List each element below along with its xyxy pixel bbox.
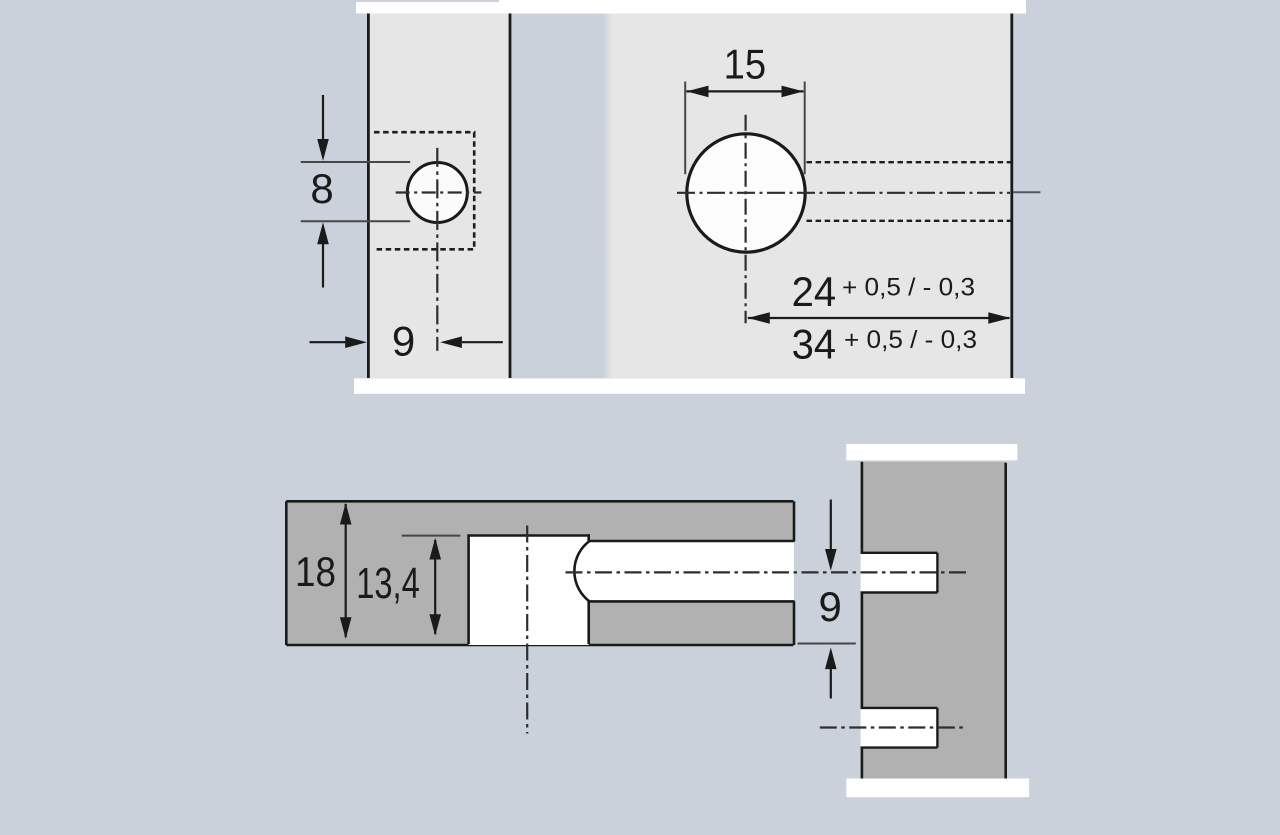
svg-text:+ 0,5 / - 0,3: + 0,5 / - 0,3 <box>844 326 977 354</box>
svg-text:18: 18 <box>295 548 336 595</box>
svg-text:24: 24 <box>792 268 837 315</box>
svg-text:13,4: 13,4 <box>356 559 420 608</box>
svg-text:+ 0,5 / - 0,3: + 0,5 / - 0,3 <box>842 274 975 302</box>
svg-text:8: 8 <box>310 165 333 212</box>
svg-text:15: 15 <box>724 40 767 87</box>
svg-text:9: 9 <box>392 317 415 364</box>
svg-text:9: 9 <box>819 583 842 630</box>
svg-text:34: 34 <box>792 321 837 368</box>
